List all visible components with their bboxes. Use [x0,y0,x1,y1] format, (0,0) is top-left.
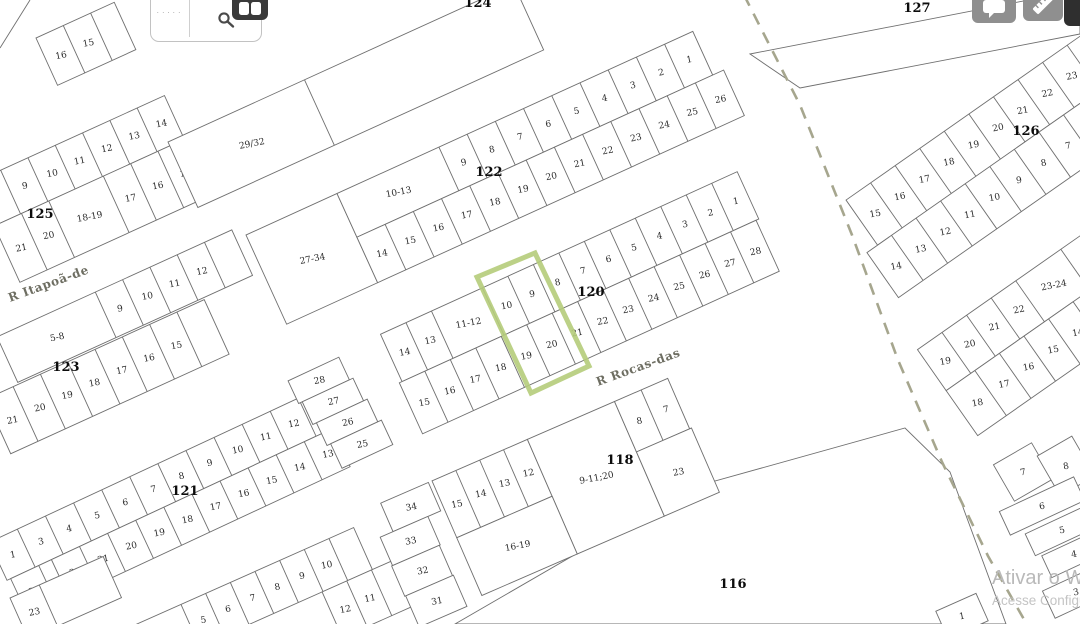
measure-button[interactable] [1023,0,1063,21]
block-number: 127 [903,1,930,16]
compare-layers-button[interactable] [232,0,268,20]
block-number: 126 [1012,124,1039,139]
comment-button[interactable] [972,0,1016,23]
block-number: 116 [719,577,746,592]
block-number: 125 [26,207,53,222]
search-hint-text: . . . . . [157,9,181,15]
split-panels-icon [239,2,261,15]
block-north-a: 1615 [36,2,136,85]
watermark-line1: Ativar o Wind [992,567,1080,590]
ruler-icon [1030,0,1056,16]
cadastral-map-screen: 161591011121314212018-191716155-89101112… [0,0,1080,624]
block-number: 124 [464,0,491,11]
lot-number: 14 [1071,327,1080,339]
block-number: 120 [577,285,604,300]
block-number: 122 [475,165,502,180]
block-edge [0,0,30,48]
block-number: 121 [171,484,198,499]
block-number: 118 [606,453,633,468]
parcel-map[interactable]: 161591011121314212018-191716155-89101112… [0,0,1080,624]
corner-tool-button[interactable] [1064,0,1080,26]
block-number: 123 [52,360,79,375]
speech-bubble-icon [982,0,1006,19]
watermark-line2: Acesse Configu [992,593,1080,608]
windows-activation-watermark: Ativar o Wind Acesse Configu [992,567,1080,608]
search-input[interactable]: . . . . . [151,0,189,41]
